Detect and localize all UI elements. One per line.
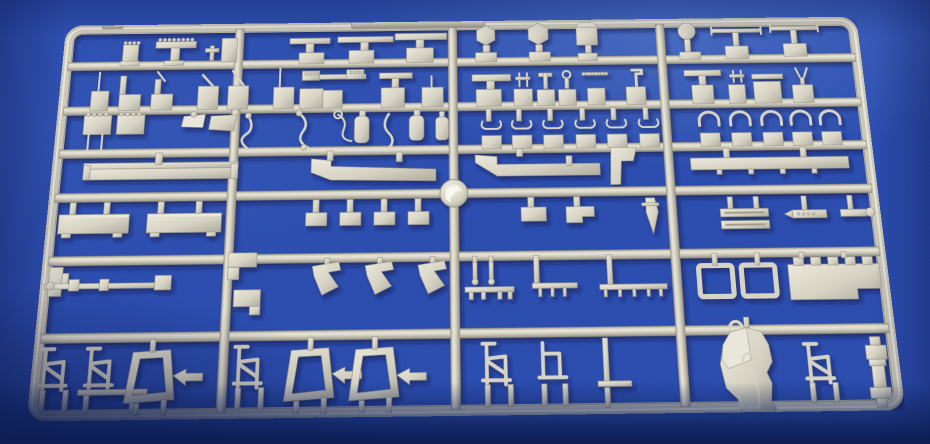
sprue-part	[357, 71, 360, 74]
sprue-part	[283, 348, 335, 402]
sprue-part	[379, 73, 412, 79]
sprue-part	[197, 86, 219, 110]
sprue-part	[827, 257, 838, 265]
sprue-part	[580, 108, 585, 120]
sprue-part	[481, 121, 501, 129]
sprue-part	[305, 213, 326, 226]
sprue-part	[299, 53, 324, 64]
sprue-part	[760, 27, 761, 34]
sprue-part	[711, 29, 761, 33]
sprue-part	[877, 398, 889, 407]
sprue-part	[481, 292, 485, 299]
sprue-part	[206, 232, 215, 236]
sprue-part	[327, 151, 333, 161]
sprue-part	[82, 395, 89, 413]
sprue-part	[485, 385, 491, 407]
sprue-part	[754, 253, 760, 265]
sprue-part	[133, 403, 139, 415]
sprue-part	[680, 52, 702, 60]
sprue-part	[338, 36, 393, 42]
sprue-part	[486, 109, 491, 121]
runner-tab	[102, 18, 124, 29]
sprue-part	[508, 384, 514, 406]
sprue-part	[298, 113, 309, 147]
sprue-part	[516, 109, 521, 121]
sprue-part	[113, 233, 122, 237]
sprue-part	[119, 76, 126, 95]
sprue-part	[321, 398, 327, 414]
sprue-part	[566, 156, 572, 166]
sprue-part	[172, 38, 176, 41]
sprue-part	[84, 348, 115, 389]
sprue-part	[181, 38, 185, 41]
sprue-part	[308, 337, 314, 350]
sprue-part	[163, 38, 167, 41]
sprue-part	[170, 48, 180, 61]
sprue-part	[299, 89, 323, 109]
sprue-part	[92, 113, 96, 117]
sprue-part	[234, 388, 240, 410]
sprue-part	[191, 112, 197, 118]
sprue-part	[514, 89, 533, 106]
sprue-part	[473, 262, 477, 280]
sprue-part	[353, 71, 356, 74]
sprue-part	[233, 290, 260, 307]
sprue-part	[578, 53, 598, 61]
sprue-part	[807, 213, 810, 215]
sprue-part	[647, 289, 651, 296]
sprue-part	[61, 390, 68, 412]
photo-canvas	[0, 0, 930, 444]
sprue-part	[804, 344, 835, 383]
sprue-part	[659, 289, 663, 296]
sprue-part	[558, 89, 576, 105]
sprue-part	[803, 68, 808, 77]
sprue-part	[800, 147, 807, 157]
sprue-part	[528, 197, 534, 208]
sprue-part	[869, 337, 880, 346]
sprue-part	[132, 41, 136, 44]
sprue-part	[862, 256, 873, 264]
sprue-part	[819, 111, 840, 124]
sprue-part	[354, 116, 369, 143]
sprue-part	[122, 45, 139, 63]
sprue-part	[812, 212, 815, 214]
sprue-part	[154, 275, 171, 290]
sprue-part	[124, 41, 128, 44]
sprue-part	[700, 133, 721, 147]
sprue-part	[711, 27, 712, 34]
sprue-part	[60, 216, 128, 217]
sprue-part	[576, 134, 596, 148]
sprue-part	[865, 345, 887, 359]
sprue-part	[872, 366, 887, 388]
sprue-part	[68, 280, 79, 292]
sprue-part	[699, 112, 720, 125]
sprue-part	[158, 202, 165, 214]
sprue-part	[227, 86, 249, 110]
sprue-part	[476, 89, 502, 106]
sprue-part	[869, 359, 886, 366]
sprue-part	[381, 88, 404, 108]
sprue-part	[233, 347, 262, 388]
sprue-part	[156, 41, 197, 48]
sprue-part	[316, 73, 319, 76]
sprue-part	[408, 211, 429, 224]
sprue-part	[512, 135, 532, 149]
sprue-part	[323, 90, 343, 108]
sprue-part	[131, 112, 135, 116]
sprue-part	[205, 48, 219, 52]
sprue-part	[415, 199, 421, 212]
sprue-part	[309, 73, 312, 76]
sprue-part	[731, 132, 752, 146]
sprue-part	[61, 234, 70, 238]
sprue-part	[191, 38, 195, 41]
sprue-part	[221, 38, 238, 62]
sprue-part	[730, 112, 751, 125]
sprue-part	[810, 257, 821, 265]
sprue-part	[847, 195, 854, 209]
sprue-part	[155, 153, 163, 165]
sprue-part	[598, 72, 601, 75]
sprue-group	[27, 17, 906, 422]
sprue-part	[584, 73, 587, 76]
sprue-part	[409, 115, 424, 140]
sprue-part	[618, 289, 621, 296]
sprue-part	[604, 72, 607, 75]
sprue-part	[128, 41, 132, 44]
sprue-part	[482, 135, 502, 149]
sprue-part	[465, 287, 514, 293]
sprue-part	[574, 197, 580, 208]
sprue-part	[313, 200, 319, 213]
sprue-part	[90, 91, 109, 111]
sprue-part	[150, 94, 173, 110]
sprue-part	[249, 306, 260, 315]
sprue-part	[607, 134, 627, 148]
runner-vertical	[448, 27, 461, 410]
sprue-part	[783, 43, 807, 56]
sprue-part	[799, 252, 805, 258]
sprue-part	[120, 112, 124, 116]
sprue-part	[598, 381, 632, 387]
sprue-part	[812, 168, 817, 173]
sprue-part	[833, 382, 840, 402]
sprue-part	[529, 52, 550, 61]
sprue-part	[723, 148, 730, 158]
sprue-part	[472, 279, 478, 285]
sprue-part	[727, 197, 733, 209]
sprue-part	[566, 206, 595, 222]
sprue-part	[600, 284, 668, 290]
sprue-part	[810, 383, 817, 403]
sprue-part	[293, 401, 299, 413]
sprue-part	[508, 292, 512, 299]
sprue-part	[86, 113, 90, 117]
sprue-part	[418, 261, 447, 294]
sprue-part	[137, 41, 141, 44]
sprue-part	[164, 61, 184, 66]
sprue-part	[483, 45, 490, 52]
sprue-part	[498, 292, 502, 299]
sprue-part	[186, 38, 190, 41]
sprue-part	[150, 339, 156, 352]
sprue-part	[690, 156, 849, 170]
sprue-part	[395, 33, 447, 40]
sprue-part	[792, 85, 814, 103]
sprue-part	[547, 108, 552, 120]
sprue-part	[482, 343, 510, 384]
sprue-part	[397, 368, 426, 385]
sprue-part	[347, 199, 353, 212]
sprue-part	[542, 384, 548, 406]
sprue-part	[543, 120, 563, 128]
sprue-part	[290, 38, 330, 44]
sprue-part	[168, 38, 172, 41]
sprue-part	[231, 164, 239, 179]
sprue-part	[241, 116, 251, 149]
sprue-part	[753, 197, 759, 209]
sprue-part	[436, 117, 449, 140]
sprue-part	[148, 215, 220, 216]
sprue-part	[801, 196, 807, 210]
sprue-part	[870, 387, 892, 398]
sprue-part	[795, 68, 800, 77]
sprue-part	[587, 88, 605, 105]
sprue-part	[280, 69, 281, 87]
sprue-part	[349, 71, 352, 74]
sprue-part	[770, 25, 771, 32]
sprue-part	[741, 265, 777, 296]
sprue-part	[563, 288, 566, 296]
sprue-part	[639, 134, 659, 148]
sprue-part	[516, 149, 522, 157]
sprue-part	[626, 87, 646, 105]
sprue-part	[210, 46, 215, 61]
sprue-part	[361, 42, 369, 50]
sprue-part	[98, 73, 100, 92]
sprue-part	[359, 401, 364, 413]
sprue-part	[487, 81, 495, 89]
sprue-part	[563, 384, 569, 406]
sprue-part	[361, 71, 364, 74]
sprue-part	[99, 279, 109, 291]
runner-vertical	[655, 24, 690, 406]
sprue-part	[802, 213, 805, 215]
sprue-part	[515, 77, 530, 80]
sprue-part	[125, 112, 129, 116]
sprue-part	[575, 120, 595, 128]
sprue-part	[841, 252, 847, 258]
sprue-part	[296, 110, 302, 116]
sprue-part	[605, 388, 611, 408]
sprue-part	[611, 108, 617, 120]
sprue-part	[729, 74, 744, 77]
sprue-part	[743, 317, 749, 328]
sprue-part	[725, 46, 749, 59]
sprue-part	[784, 210, 793, 218]
sprue-part	[712, 253, 718, 265]
sprue-part	[392, 78, 399, 87]
sprue-part	[604, 290, 607, 297]
sprue-part	[565, 78, 569, 88]
sprue-part	[305, 73, 308, 76]
sprue-part	[551, 288, 554, 296]
sprue-part	[602, 338, 609, 383]
sprue-part	[103, 202, 110, 214]
sprue-part	[539, 288, 542, 296]
sprue-part	[489, 262, 493, 280]
sprue-part	[633, 289, 636, 296]
sprue-part	[797, 213, 800, 215]
sprue-part	[732, 32, 739, 46]
sprue-part	[422, 87, 443, 107]
sprue-part	[728, 85, 746, 104]
sprue-part	[196, 201, 203, 213]
sprue-part	[699, 76, 706, 85]
sprue-part	[512, 121, 532, 129]
sprue-part	[83, 165, 91, 180]
sprue-part	[177, 38, 181, 41]
sprue-part	[717, 169, 722, 174]
sprue-part	[585, 45, 591, 53]
sprue-part	[118, 94, 141, 110]
sprue-part	[416, 40, 424, 48]
sprue-part	[632, 70, 643, 87]
sprue-part	[790, 30, 797, 44]
sprue-part	[381, 199, 387, 212]
sprue-part	[475, 153, 600, 176]
sprue-part	[562, 71, 570, 78]
sprue-part	[160, 400, 166, 416]
sprue-part	[116, 115, 145, 134]
sprue-part	[123, 350, 177, 404]
sprue-part	[538, 343, 566, 378]
sprue-part	[521, 207, 546, 221]
sprue-part	[609, 147, 639, 184]
sprue-part	[173, 369, 203, 386]
sprue-part	[385, 114, 393, 148]
sprue-part	[488, 279, 494, 285]
sprue-part	[822, 131, 843, 145]
sprue-part	[472, 74, 511, 81]
sprue-part	[800, 77, 805, 84]
sprue-part	[69, 203, 76, 215]
sprue-part	[684, 39, 691, 52]
sprue-part	[780, 169, 785, 174]
sprue-part	[154, 79, 161, 94]
sprue-part	[365, 261, 394, 294]
sprue-part	[227, 267, 239, 279]
sprue-part	[476, 52, 497, 61]
sprue-part	[349, 347, 400, 401]
sprue-part	[77, 389, 147, 395]
sprue-part	[273, 87, 294, 109]
sprue-part	[684, 70, 721, 76]
sprue-part	[98, 113, 102, 117]
sprue-part	[753, 81, 782, 103]
sprue-part	[692, 85, 715, 104]
sprue-part	[104, 113, 108, 117]
sprue-part	[406, 48, 433, 63]
sprue-part	[642, 203, 659, 206]
sprue-part	[532, 283, 577, 289]
sprue-part	[643, 107, 649, 119]
sprue-part	[87, 168, 235, 180]
sprue-part	[396, 152, 402, 162]
sprue-part	[386, 397, 391, 412]
sprue-part	[150, 233, 159, 237]
sprue-parts	[30, 19, 900, 421]
sprue-part	[301, 144, 307, 150]
sprue-part	[606, 120, 626, 128]
sprue-part	[374, 212, 395, 225]
sprue-part	[120, 61, 140, 66]
sprue-part	[312, 262, 341, 295]
sprue-part	[639, 119, 659, 127]
sprue-part	[790, 111, 811, 124]
sprue-part	[543, 135, 563, 149]
sprue-part	[751, 74, 782, 79]
sprue-part	[840, 209, 867, 216]
sprue-part	[83, 115, 112, 134]
sprue-part	[770, 26, 818, 30]
sprue-part	[817, 24, 818, 31]
sprue-part	[576, 27, 598, 45]
sprue	[27, 17, 906, 422]
sprue-part	[158, 38, 162, 41]
sprue-part	[536, 45, 543, 52]
sprue-part	[137, 112, 141, 116]
sprue-hub	[440, 179, 468, 207]
sprue-part	[533, 255, 539, 283]
sprue-part	[313, 73, 316, 76]
sprue-part	[763, 132, 784, 146]
sprue-part	[245, 113, 251, 119]
sprue-part	[349, 50, 374, 63]
sprue-part	[792, 132, 813, 146]
sprue-part	[208, 115, 236, 131]
sprue-part	[591, 72, 594, 75]
sprue-part	[537, 90, 555, 106]
sprue-part	[576, 22, 597, 27]
sprue-part	[228, 253, 257, 268]
sprue-part	[311, 157, 436, 182]
sprue-part	[788, 263, 884, 299]
sprue-part	[340, 212, 361, 225]
sprue-svg	[27, 17, 906, 422]
sprue-part	[258, 388, 264, 410]
sprue-part	[372, 337, 377, 350]
sprue-part	[543, 73, 547, 89]
sprue-part	[469, 292, 473, 299]
runner-tab	[351, 17, 484, 29]
sprue-part	[749, 169, 754, 174]
sprue-part	[761, 111, 782, 124]
sprue-part	[698, 265, 734, 296]
sprue-part	[306, 44, 314, 53]
